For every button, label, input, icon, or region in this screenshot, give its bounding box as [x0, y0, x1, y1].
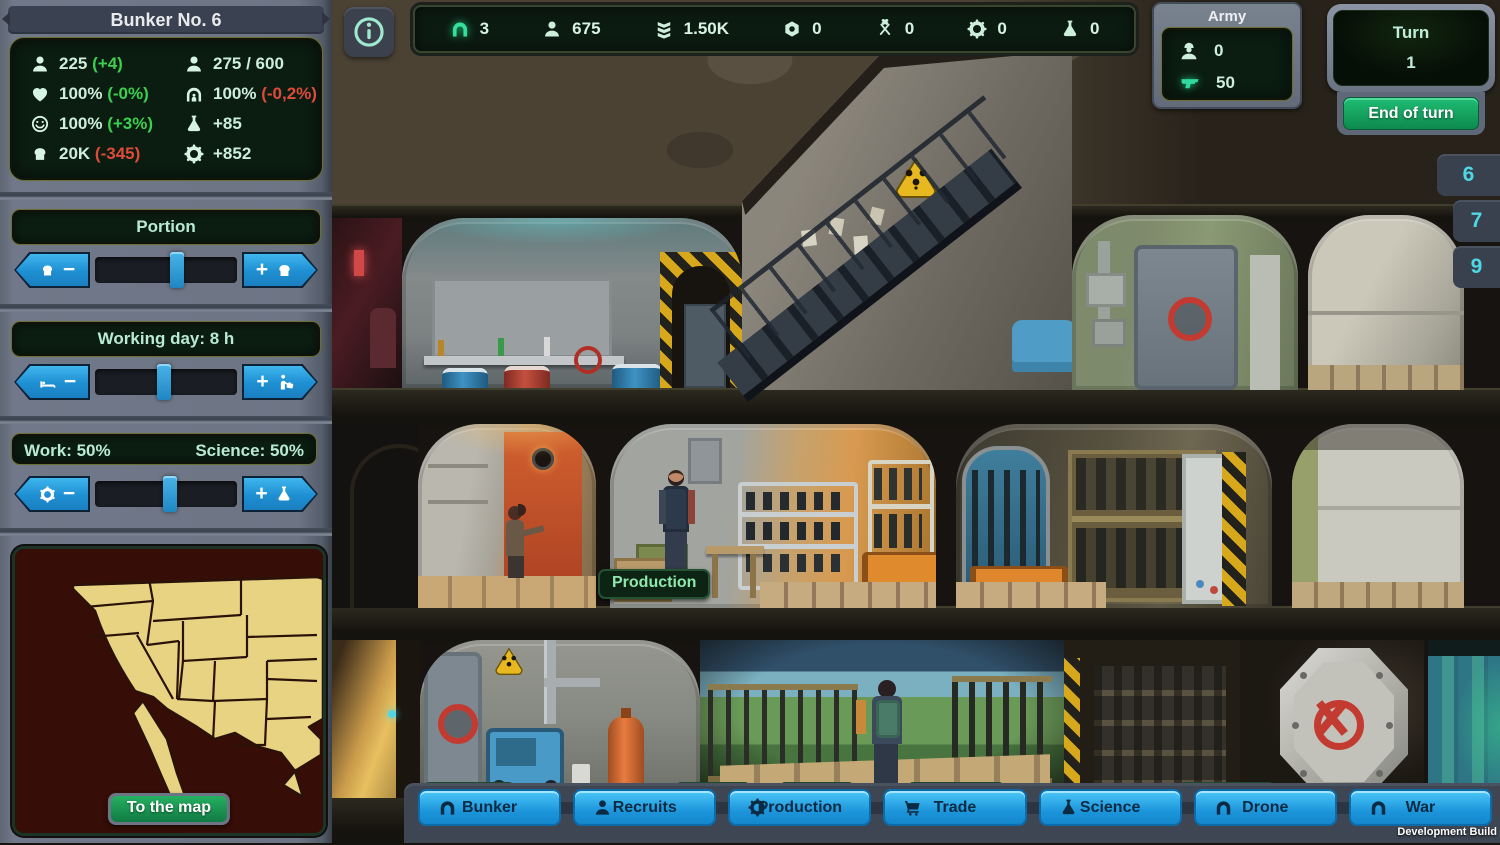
red-lamp [354, 250, 364, 276]
portion-decrease-button[interactable]: − [14, 252, 90, 288]
warm-light [418, 424, 596, 484]
cart-icon [903, 798, 922, 817]
floor-tab-7[interactable]: 7 [1453, 200, 1500, 242]
gear-icon [39, 486, 56, 503]
gear-icon [967, 19, 987, 39]
room-label-production: Production [598, 569, 710, 599]
worker-arm-band [688, 490, 695, 524]
nav-connector [871, 802, 883, 814]
stat-population: 225 (+4) [12, 54, 166, 74]
nav-war-label: War [1406, 799, 1436, 817]
room-bar[interactable] [402, 218, 742, 388]
working-day-handle[interactable] [157, 364, 171, 400]
portion-track[interactable] [95, 257, 237, 283]
floor-slab-2 [320, 606, 1500, 642]
divider [0, 304, 332, 312]
resource-bar: 3 675 1.50K 0 0 0 0 [413, 5, 1136, 53]
floor-tab-label: 7 [1471, 209, 1483, 233]
army-panel: Army 0 50 [1152, 2, 1302, 109]
gear-icon [748, 798, 767, 817]
portion-slider: − + [14, 252, 318, 288]
turn-label: Turn [1334, 23, 1488, 43]
nav-science-label: Science [1080, 799, 1140, 817]
room-dark-partial[interactable] [330, 424, 418, 608]
resource-science: 0 [1060, 19, 1099, 39]
teal-light [388, 710, 396, 718]
working-day-decrease-button[interactable]: − [14, 364, 90, 400]
arch-outline [350, 444, 418, 608]
room-generator[interactable] [420, 640, 700, 798]
nav-war-button[interactable]: War [1349, 789, 1492, 826]
hazard-column [1222, 452, 1246, 606]
arch-shadow [1292, 424, 1464, 450]
table-leg [712, 554, 718, 598]
working-day-track[interactable] [95, 369, 237, 395]
minus-label: − [63, 259, 75, 280]
nut-icon [782, 19, 802, 39]
red-room-shape [370, 308, 396, 368]
nav-connector [1182, 802, 1194, 814]
bunker-stats-panel: 225 (+4) 275 / 600 100% (-0%) 100% (-0,2… [10, 38, 322, 180]
stat-happiness: 100% (+3%) [12, 114, 166, 134]
floor-slab-1 [320, 388, 1500, 426]
room-red-lit-partial[interactable] [330, 218, 402, 388]
nav-recruits-button[interactable]: Recruits [573, 789, 716, 826]
army-soldiers: 0 [1178, 35, 1290, 67]
room-storage[interactable] [1064, 640, 1240, 798]
floor-tab-label: 6 [1463, 163, 1475, 187]
crate-stack [856, 700, 866, 734]
working-day-title: Working day: 8 h [12, 322, 320, 356]
population-icon [30, 54, 50, 74]
nav-trade-button[interactable]: Trade [883, 789, 1026, 826]
work-label: Work: 50% [24, 436, 111, 462]
shelter-icon [184, 84, 204, 104]
nav-science-button[interactable]: Science [1039, 789, 1182, 826]
backpack [876, 700, 900, 738]
divider [0, 416, 332, 424]
stat-science: +85 [166, 114, 320, 134]
electrical-panel [688, 438, 722, 484]
tools-icon [875, 19, 895, 39]
development-build-label: Development Build [1397, 826, 1497, 838]
room-utility[interactable] [1072, 215, 1298, 390]
science-icon [1059, 798, 1078, 817]
bottle [544, 337, 550, 356]
end-of-turn-button[interactable]: End of turn [1343, 97, 1479, 130]
nav-connector [1337, 802, 1349, 814]
turn-screen: Turn 1 [1333, 10, 1489, 86]
nav-trade-label: Trade [934, 799, 977, 817]
barrel-red [504, 366, 550, 388]
food-icon [39, 262, 56, 279]
info-icon [352, 15, 386, 49]
resource-bunkers: 3 [450, 19, 489, 39]
army-screen: 0 50 [1162, 28, 1292, 100]
stat-food: 20K (-345) [12, 144, 166, 164]
production-icon [184, 144, 204, 164]
portion-handle[interactable] [170, 252, 184, 288]
work-science-track[interactable] [95, 481, 237, 507]
resource-production: 0 [967, 19, 1006, 39]
pallets [956, 582, 1106, 608]
nav-drone-label: Drone [1242, 799, 1288, 817]
wall-edge [396, 640, 420, 798]
plus-label: + [256, 259, 268, 280]
work-science-slider: − + [14, 476, 318, 512]
child-legs [508, 556, 524, 578]
prev-bunker-arrow-icon[interactable] [2, 12, 10, 26]
bunker-icon [1214, 798, 1233, 817]
info-button[interactable] [344, 7, 394, 57]
science-icon [1060, 19, 1080, 39]
bunker-sidebar: Bunker No. 6 225 (+4) 275 / 600 100% (-0… [0, 0, 332, 843]
green-glow [1428, 640, 1500, 798]
room-armory[interactable] [956, 424, 1272, 608]
population-icon [542, 19, 562, 39]
to-the-map-button[interactable]: To the map [108, 793, 230, 825]
resource-tools: 0 [875, 19, 914, 39]
turn-value: 1 [1334, 53, 1488, 73]
bunker-icon [1369, 798, 1388, 817]
room-quarters[interactable] [418, 424, 596, 608]
recruit-icon [593, 798, 612, 817]
hazard-post [1064, 658, 1080, 798]
stat-health: 100% (-0%) [12, 84, 166, 104]
work-science-handle[interactable] [163, 476, 177, 512]
bed-icon [38, 373, 57, 392]
door-leaf [424, 652, 482, 798]
radiation-sign-small [494, 648, 524, 675]
table-top [706, 546, 764, 554]
working-day-slider: − + [14, 364, 318, 400]
turn-panel: Turn 1 End of turn [1327, 4, 1495, 135]
science-icon [275, 485, 293, 503]
plus-label: + [256, 371, 268, 392]
nav-recruits-label: Recruits [613, 799, 677, 817]
room-empty-top[interactable] [1308, 215, 1464, 390]
happiness-icon [30, 114, 50, 134]
shelf-line [428, 464, 488, 468]
army-title: Army [1154, 8, 1300, 25]
pallet-floor [1292, 582, 1464, 608]
person-legs [874, 744, 898, 788]
bunker-icon [438, 798, 457, 817]
food-icon [275, 261, 294, 280]
usa-map [15, 549, 323, 833]
science-increase-button[interactable]: + [242, 476, 318, 512]
barrel-blue [442, 368, 488, 388]
nav-connector [716, 802, 728, 814]
nav-connector [561, 802, 573, 814]
food-icon [30, 144, 50, 164]
worker-legs [665, 532, 687, 572]
worker-icon [276, 372, 296, 392]
working-day-increase-button[interactable]: + [242, 364, 318, 400]
generator [486, 728, 564, 788]
electrical-box [1086, 273, 1126, 307]
room-shooting-range[interactable] [700, 640, 1064, 798]
pallet-floor [1308, 365, 1464, 390]
worker-arm [659, 490, 666, 524]
pallets [760, 582, 936, 608]
bottle [498, 338, 504, 356]
stat-production: +852 [166, 144, 320, 164]
floor-tab-9[interactable]: 9 [1453, 246, 1500, 288]
child-body [506, 520, 524, 556]
worker-vest [663, 486, 689, 532]
divider [0, 192, 332, 200]
soldier-icon [1178, 40, 1200, 62]
work-increase-button[interactable]: − [14, 476, 90, 512]
next-bunker-arrow-icon[interactable] [322, 12, 330, 26]
bunker-title: Bunker No. 6 [8, 6, 324, 34]
wall-seam [1308, 311, 1464, 315]
nav-connector [1027, 802, 1039, 814]
nav-drone-button[interactable]: Drone [1194, 789, 1337, 826]
barrel-blue [612, 364, 662, 388]
gas-cylinder [608, 716, 644, 788]
room-empty-mid[interactable] [1292, 424, 1464, 608]
wood-floor [418, 576, 596, 608]
bunker-icon [450, 19, 470, 39]
room-warm-partial[interactable] [330, 640, 420, 798]
room-vault[interactable] [1240, 640, 1424, 798]
bottle [438, 340, 444, 356]
to-the-map-label: To the map [111, 796, 227, 822]
stat-shelter: 100% (-0,2%) [166, 84, 320, 104]
floor-tab-label: 9 [1471, 255, 1483, 279]
gun-shelf [738, 482, 858, 590]
minus-label: − [63, 483, 75, 504]
door-frame [1250, 255, 1280, 390]
resource-experience: 1.50K [654, 19, 729, 40]
pipe-elbow [544, 678, 600, 687]
blue-armchair [1012, 320, 1076, 372]
rank-icon [654, 19, 674, 40]
plus-label: + [255, 483, 267, 504]
capacity-icon [184, 54, 204, 74]
gun-icon [1178, 72, 1202, 94]
gray-door [1134, 245, 1238, 390]
table-leg [750, 554, 756, 598]
nav-bunker-label: Bunker [462, 799, 517, 817]
bottom-navbar: Bunker Recruits Production Trade Science… [404, 783, 1500, 843]
minus-label: − [64, 371, 76, 392]
room-greenhouse[interactable] [1428, 640, 1500, 798]
science-label: Science: 50% [195, 436, 304, 462]
resource-population: 675 [542, 19, 600, 39]
army-weapons: 50 [1178, 67, 1290, 99]
portion-increase-button[interactable]: + [242, 252, 318, 288]
resource-parts: 0 [782, 19, 821, 39]
vault-door [1280, 648, 1408, 796]
nav-production-button[interactable]: Production [728, 789, 871, 826]
stat-capacity: 275 / 600 [166, 54, 320, 74]
shelf-line [428, 500, 488, 504]
worker-head [668, 470, 684, 486]
nav-production-label: Production [758, 799, 842, 817]
green-wall-strip [1292, 424, 1318, 608]
health-icon [30, 84, 50, 104]
science-icon [184, 114, 204, 134]
floor-tab-6[interactable]: 6 [1437, 154, 1500, 196]
portion-title: Portion [12, 210, 320, 244]
work-science-title: Work: 50% Science: 50% [12, 434, 316, 464]
nav-bunker-button[interactable]: Bunker [418, 789, 561, 826]
minimap-panel[interactable]: To the map [12, 546, 326, 836]
wall-seam [1318, 506, 1464, 510]
divider [0, 528, 332, 536]
valve-wheel [574, 346, 602, 374]
gun-silhouettes [1094, 666, 1226, 792]
electrical-box [1092, 319, 1126, 347]
